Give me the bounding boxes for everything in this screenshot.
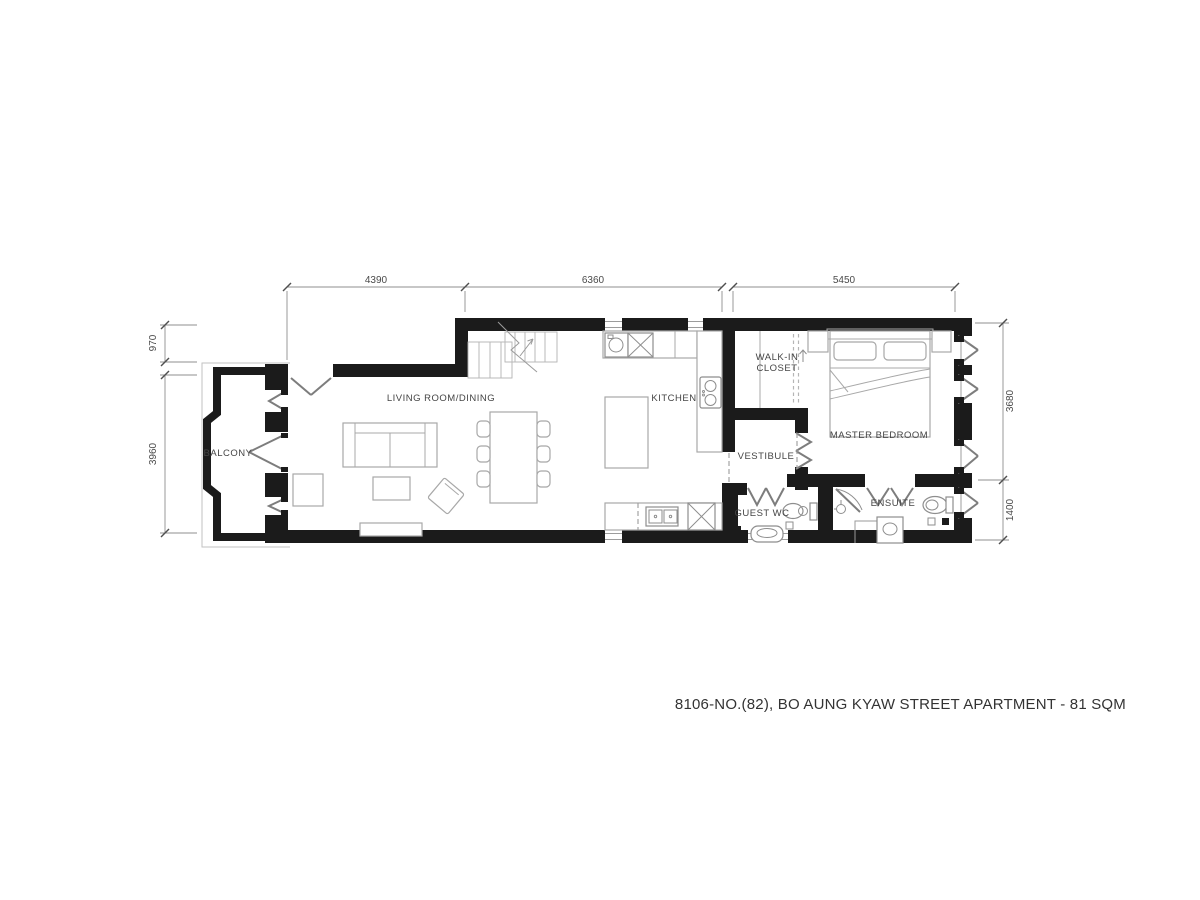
guestwc-door [748,488,766,505]
stair-direction-arrow [520,339,533,356]
ensuite-top-wall [915,474,972,487]
dim-top-2: 6360 [582,275,605,286]
pillow [884,342,926,360]
dining-chair [477,421,490,437]
dim-left-2: 3960 [148,442,159,465]
tv-console [360,523,422,536]
right-wall-segment [954,518,972,543]
living-top-wall [333,364,468,377]
vestibule-master-door [796,451,811,469]
balcony-french-door [249,434,286,452]
walkin-closet-label-1: WALK-IN [756,352,799,363]
dining-chair [537,421,550,437]
kitchen-label: KITCHEN [651,393,696,404]
top-wall-segment [455,318,605,331]
living-dining-label: LIVING ROOM/DINING [387,393,495,404]
kitchen-divider-wall [722,318,735,452]
living-furniture [293,412,550,536]
bedroom-furniture [760,329,951,437]
dim-right-2: 1400 [1005,498,1016,521]
dim-top-1: 4390 [365,275,388,286]
ensuite-label: ENSUITE [871,498,916,509]
walkin-closet-label-2: CLOSET [756,363,797,374]
master-bedroom-label: MASTER BEDROOM [830,430,928,441]
nightstand [932,331,951,352]
guestwc-door [766,488,784,505]
floor-plan-page: BALCONY LIVING ROOM/DINING KITCHEN WALK-… [0,0,1200,900]
dining-chair [477,471,490,487]
dining-chair [477,446,490,462]
balcony-french-door [249,452,286,471]
balcony-pillar [265,412,288,432]
side-table [293,474,323,506]
kitchen-fixtures [603,331,722,530]
nightstand [808,331,828,352]
drawing-title: 8106-NO.(82), BO AUNG KYAW STREET APARTM… [675,696,1126,713]
ensuite-toilet-tank [946,497,953,513]
guestwc-toilet-tank [810,503,817,520]
dim-left-1: 970 [148,334,159,351]
guestwc-duct [732,526,741,535]
armchair [428,478,465,515]
ensuite-toilet-icon [923,497,947,514]
kitchen-island [605,397,648,468]
balcony-pillar [265,473,288,497]
right-wall-segment [954,318,972,336]
dining-table [490,412,537,503]
ensuite-vanity [877,517,903,543]
balcony-pillar [265,515,288,543]
shower-head-icon [837,505,846,514]
coffee-table [373,477,410,500]
guest-wc-label: GUEST WC [734,508,789,519]
dining-chair [537,471,550,487]
vestibule-label: VESTIBULE [738,451,795,462]
entry-door-leaf [291,378,311,395]
vestibule-master-door [796,433,811,451]
closet-arrow-icon [800,350,807,362]
dim-right-1: 3680 [1005,389,1016,412]
balcony-label: BALCONY [204,448,253,459]
guestwc-ensuite-divider [818,483,833,543]
dim-top-3: 5450 [833,275,856,286]
closet-bottom-wall [735,408,797,420]
floor-plan-drawing: BALCONY LIVING ROOM/DINING KITCHEN WALK-… [0,0,1200,900]
bottom-wall-segment [288,530,605,543]
pillow [834,342,876,360]
right-wall-segment [954,403,972,440]
right-wall-segment [954,365,972,375]
entry-door-leaf [311,378,331,395]
bedroom-west-wall [795,408,808,433]
top-wall-segment [622,318,688,331]
dining-chair [537,446,550,462]
